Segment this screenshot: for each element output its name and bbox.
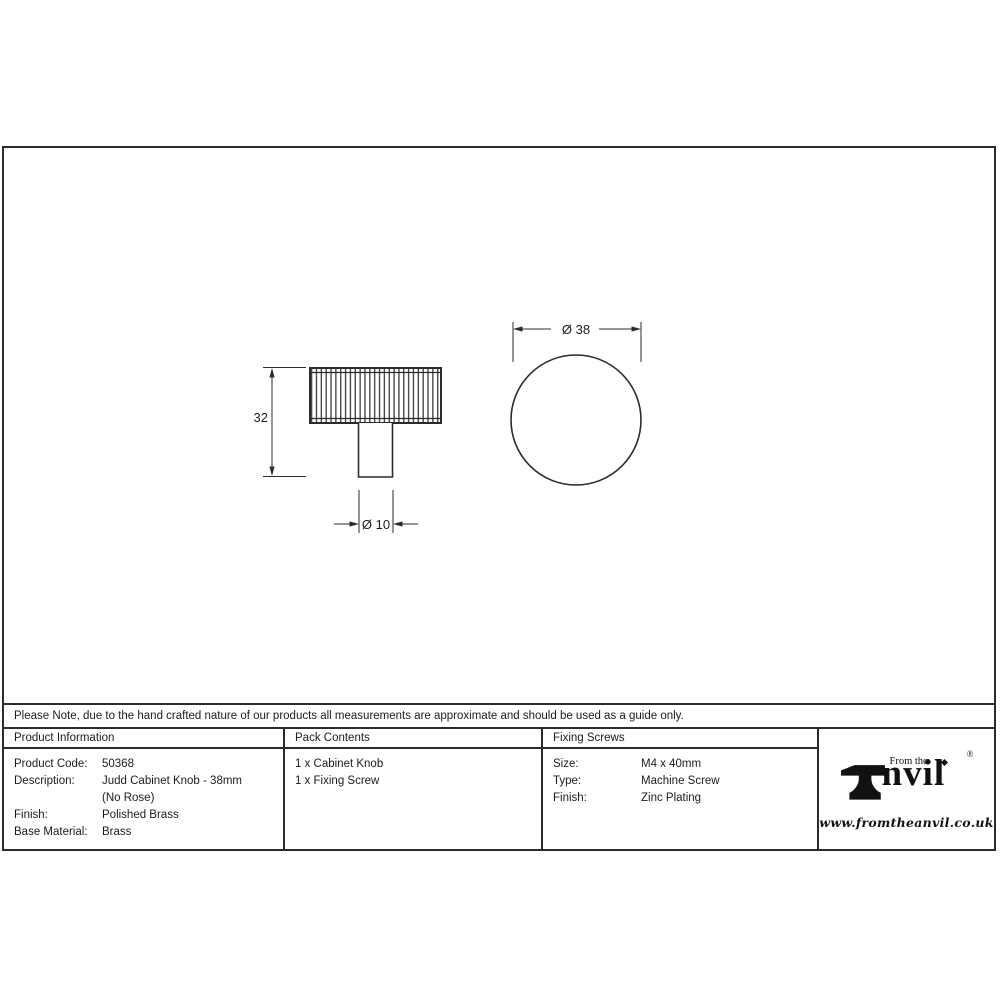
table-row: Description: Judd Cabinet Knob - 38mm — [14, 773, 283, 790]
table-row: Size: M4 x 40mm — [553, 756, 817, 773]
row-value: Zinc Plating — [641, 790, 701, 807]
pack-contents-column: Pack Contents 1 x Cabinet Knob 1 x Fixin… — [285, 729, 543, 849]
registered-trademark-icon: ® — [967, 749, 974, 759]
product-information-body: Product Code: 50368 Description: Judd Ca… — [4, 749, 283, 841]
brand-logo-cell: From the ® nvil www.fromtheanvil.co.uk — [819, 729, 994, 849]
spec-sheet: 32 Ø 10 Ø 38 Please Note, due to t — [0, 0, 1000, 1000]
logo-website: www.fromtheanvil.co.uk — [819, 815, 993, 830]
row-label: Product Code: — [14, 756, 102, 773]
row-value: Brass — [102, 824, 131, 841]
table-row: Type: Machine Screw — [553, 773, 817, 790]
row-value: Machine Screw — [641, 773, 720, 790]
note-bar: Please Note, due to the hand crafted nat… — [4, 703, 994, 729]
row-value: (No Rose) — [102, 790, 154, 807]
sheet-frame: Please Note, due to the hand crafted nat… — [2, 146, 996, 851]
table-row: Base Material: Brass — [14, 824, 283, 841]
pack-contents-header: Pack Contents — [285, 729, 541, 749]
spec-table: Product Information Product Code: 50368 … — [4, 729, 994, 849]
row-label: Base Material: — [14, 824, 102, 841]
table-row: (No Rose) — [14, 790, 283, 807]
fixing-screws-header: Fixing Screws — [543, 729, 817, 749]
row-value: M4 x 40mm — [641, 756, 701, 773]
anvil-icon — [840, 763, 886, 807]
row-value: Polished Brass — [102, 807, 179, 824]
table-row: Product Code: 50368 — [14, 756, 283, 773]
anvil-logo: From the ® nvil — [840, 749, 974, 813]
fixing-screws-column: Fixing Screws Size: M4 x 40mm Type: Mach… — [543, 729, 819, 849]
row-label: Size: — [553, 756, 641, 773]
row-label: Description: — [14, 773, 102, 790]
list-item: 1 x Fixing Screw — [295, 773, 541, 790]
product-information-column: Product Information Product Code: 50368 … — [4, 729, 285, 849]
table-row: Finish: Zinc Plating — [553, 790, 817, 807]
pack-contents-body: 1 x Cabinet Knob 1 x Fixing Screw — [285, 749, 541, 790]
note-text: Please Note, due to the hand crafted nat… — [14, 710, 684, 722]
row-value: Judd Cabinet Knob - 38mm — [102, 773, 242, 790]
logo-brand-text: nvil — [882, 755, 946, 792]
row-label: Type: — [553, 773, 641, 790]
row-label — [14, 790, 102, 807]
list-item: 1 x Cabinet Knob — [295, 756, 541, 773]
table-row: Finish: Polished Brass — [14, 807, 283, 824]
row-label: Finish: — [14, 807, 102, 824]
product-information-header: Product Information — [4, 729, 283, 749]
fixing-screws-body: Size: M4 x 40mm Type: Machine Screw Fini… — [543, 749, 817, 807]
row-label: Finish: — [553, 790, 641, 807]
row-value: 50368 — [102, 756, 134, 773]
